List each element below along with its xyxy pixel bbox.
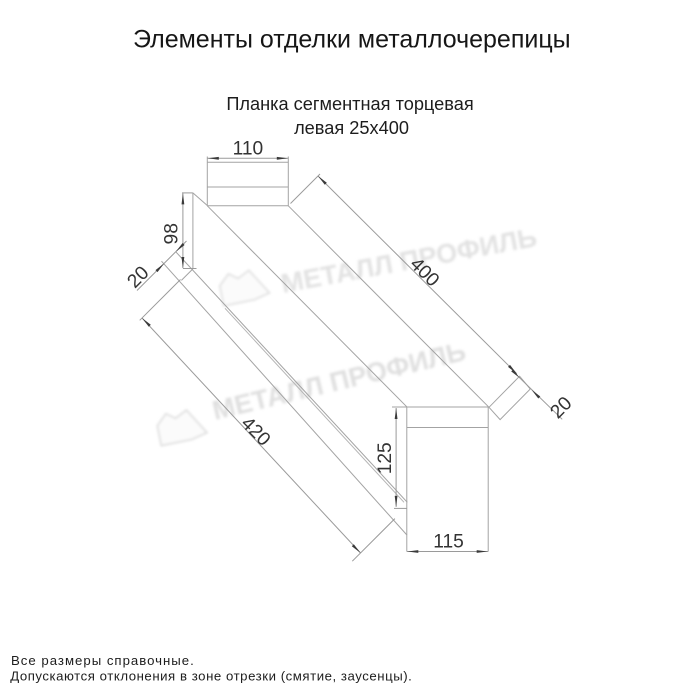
svg-text:98: 98 bbox=[161, 223, 182, 244]
svg-text:20: 20 bbox=[547, 393, 577, 423]
svg-text:МЕТАЛЛ ПРОФИЛЬ: МЕТАЛЛ ПРОФИЛЬ bbox=[209, 336, 468, 426]
svg-text:Элементы отделки металлочерепи: Элементы отделки металлочерепицы bbox=[133, 26, 571, 54]
svg-text:Допускаются отклонения в зоне: Допускаются отклонения в зоне отрезки (с… bbox=[10, 669, 412, 684]
svg-text:Все размеры справочные.: Все размеры справочные. bbox=[11, 653, 195, 668]
svg-text:МЕТАЛЛ ПРОФИЛЬ: МЕТАЛЛ ПРОФИЛЬ bbox=[279, 222, 539, 299]
svg-text:115: 115 bbox=[433, 531, 464, 552]
svg-text:110: 110 bbox=[233, 138, 264, 159]
svg-text:левая 25х400: левая 25х400 bbox=[294, 118, 409, 138]
svg-text:20: 20 bbox=[124, 263, 154, 293]
svg-text:125: 125 bbox=[375, 442, 396, 474]
svg-text:Планка сегментная торцевая: Планка сегментная торцевая bbox=[226, 94, 473, 114]
